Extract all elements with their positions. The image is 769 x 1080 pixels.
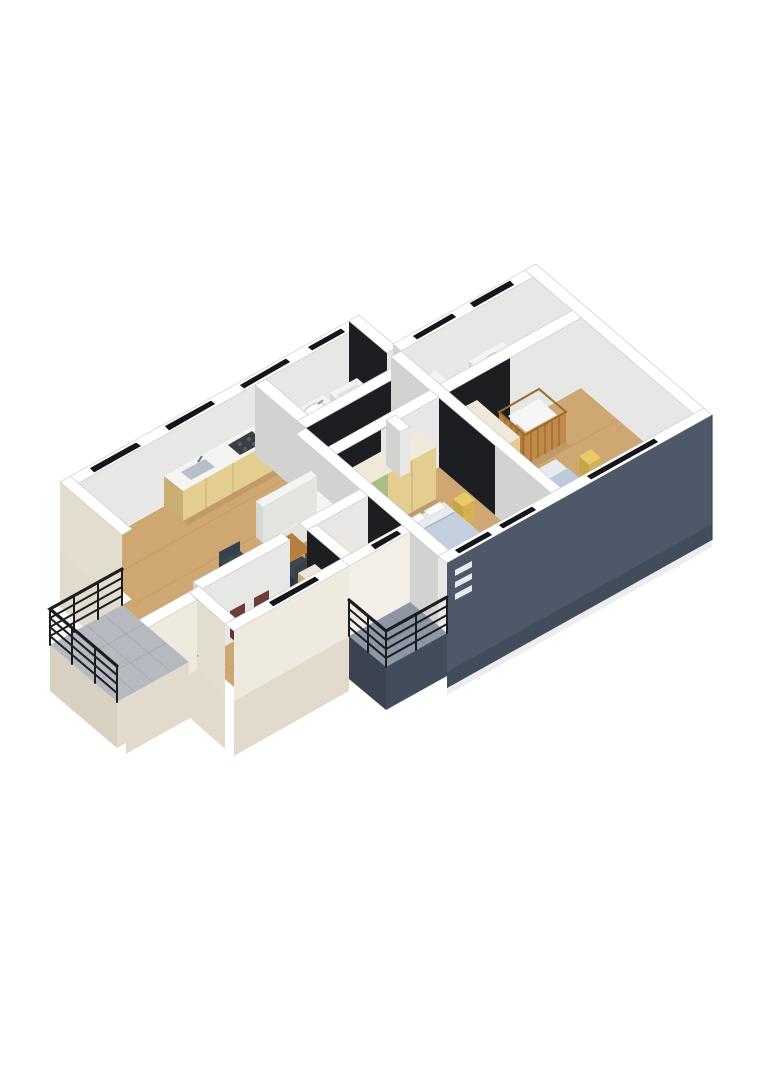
isometric-floor-plan: 3D isometric floor plan rendering of an … (0, 0, 769, 1080)
balcony-south (349, 597, 447, 710)
knee-wall (386, 415, 410, 477)
burner (243, 447, 247, 451)
burner (238, 442, 242, 446)
sofa-back-end (256, 501, 263, 543)
wall-end (400, 427, 410, 477)
burner (247, 437, 251, 441)
floor-plan-render: 3D isometric floor plan rendering of an … (0, 0, 769, 1080)
